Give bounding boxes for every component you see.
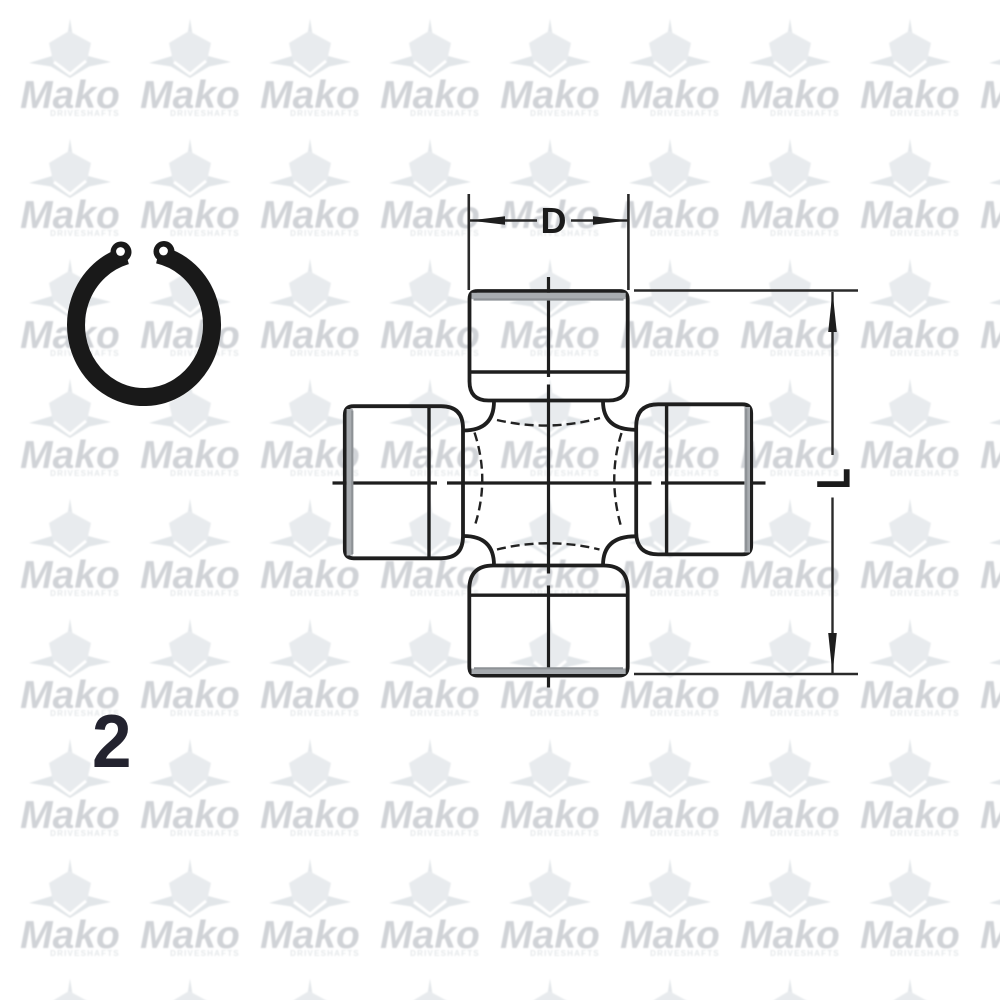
svg-text:2: 2 [92, 699, 132, 783]
svg-text:D: D [541, 200, 567, 241]
